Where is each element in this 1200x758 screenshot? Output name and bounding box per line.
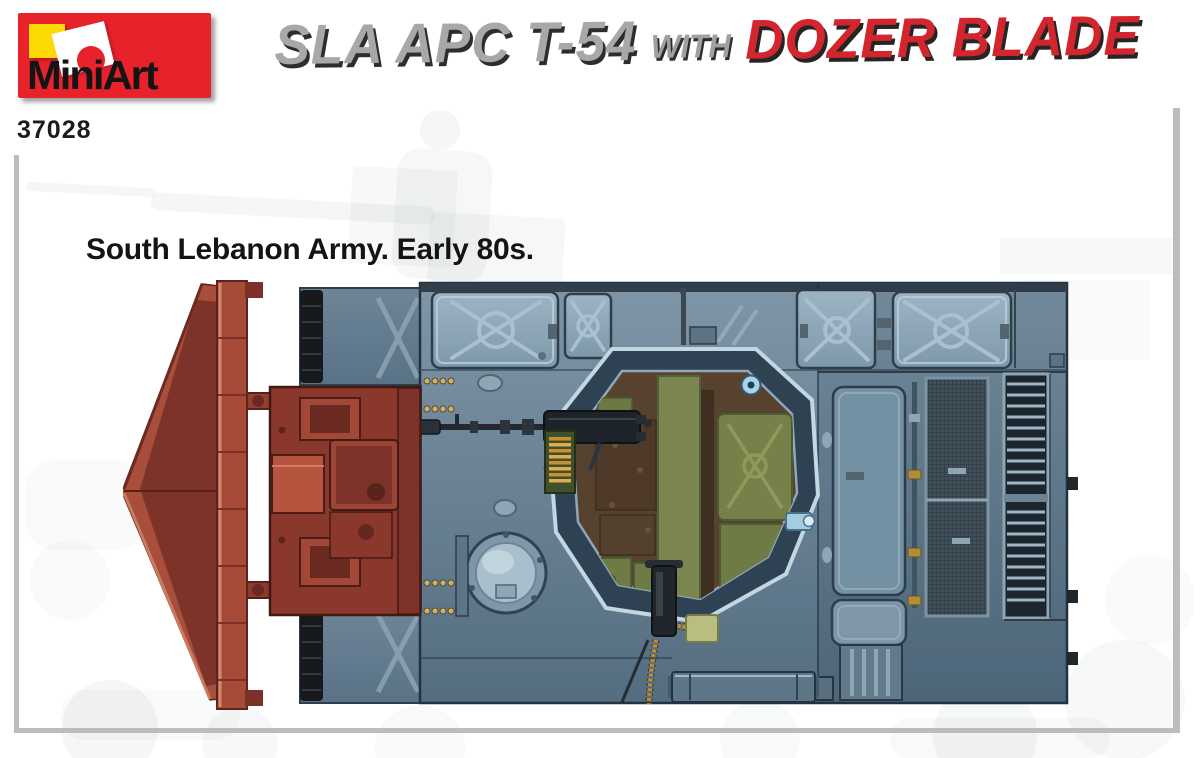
kit-number: 37028 bbox=[17, 116, 92, 145]
title-dozer-blade: DOZER BLADE bbox=[745, 4, 1140, 70]
page-title: SLA APC T-54 WITH DOZER BLADE bbox=[274, 4, 1140, 75]
blade-moldboard-bar bbox=[217, 281, 263, 709]
frame-line-right bbox=[1173, 108, 1180, 733]
engine-access-door bbox=[822, 387, 905, 595]
frame-line-bottom bbox=[14, 728, 1180, 733]
boxart-illustration bbox=[0, 0, 1200, 758]
rear-rounded-box bbox=[832, 600, 906, 645]
interior-fuel-tank bbox=[718, 414, 792, 520]
engine-mesh-grille bbox=[926, 378, 988, 616]
front-fender-bottom bbox=[300, 608, 422, 703]
ribbed-box bbox=[840, 645, 902, 700]
title-vehicle-name: SLA APC T-54 bbox=[274, 10, 637, 76]
front-fender-top bbox=[300, 288, 422, 385]
stowage-bin-4 bbox=[893, 292, 1011, 368]
brand-name: MiniArt bbox=[27, 55, 157, 96]
title-connector: WITH bbox=[651, 28, 732, 71]
light-ammo-box bbox=[686, 615, 718, 642]
track-bottom bbox=[300, 610, 323, 701]
louver-grille bbox=[1004, 374, 1048, 618]
caption-text: South Lebanon Army. Early 80s. bbox=[86, 233, 534, 267]
frame-line-left bbox=[14, 155, 19, 733]
dshk-ammo-box bbox=[545, 431, 575, 493]
dozer-push-frame bbox=[247, 387, 420, 615]
bottom-rail bbox=[668, 672, 819, 702]
dozer-blade bbox=[124, 281, 263, 709]
collar-hinge-bracket bbox=[786, 513, 815, 530]
stowage-bin-1 bbox=[432, 292, 558, 368]
stowage-bin-3 bbox=[797, 290, 875, 368]
stowage-bin-2 bbox=[565, 294, 611, 358]
miniart-logo: MiniArt bbox=[18, 13, 211, 98]
